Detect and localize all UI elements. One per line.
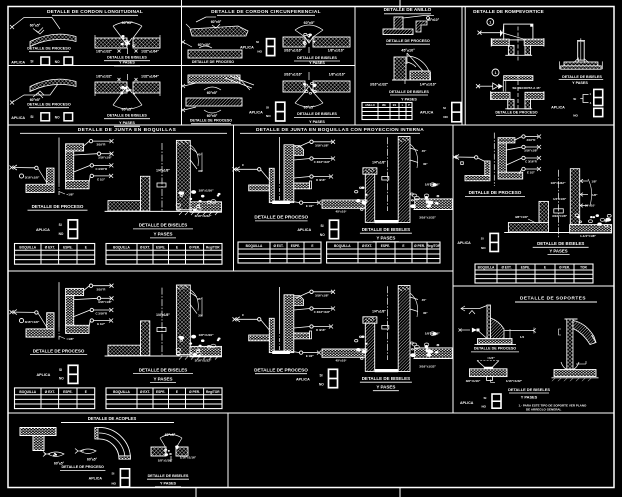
svg-text:3/16″±1/8″: 3/16″±1/8″ (25, 320, 40, 324)
svg-text:E 1/2″: E 1/2″ (97, 322, 106, 326)
svg-text:NO: NO (55, 60, 60, 64)
svg-text:DETALLE DE JUNTA EN BOQUILLAS: DETALLE DE JUNTA EN BOQUILLAS CON PROYEC… (256, 127, 424, 133)
svg-text:BOQUILLA: BOQUILLA (246, 244, 263, 248)
svg-text:Ø EXT.: Ø EXT. (140, 390, 150, 394)
svg-text:≈1/8″: ≈1/8″ (67, 337, 75, 341)
svg-text:APLICA: APLICA (89, 476, 103, 480)
svg-text:APLICA: APLICA (37, 373, 51, 377)
svg-text:30°: 30° (423, 162, 428, 166)
svg-text:SI: SI (484, 396, 487, 400)
svg-text:45°±10°: 45°±10° (335, 359, 347, 363)
svg-text:45°: 45° (197, 153, 202, 157)
svg-text:SI: SI (59, 223, 62, 227)
svg-text:1/4″±1/16″: 1/4″±1/16″ (420, 83, 437, 87)
svg-text:SI: SI (266, 105, 269, 109)
svg-text:30°: 30° (198, 169, 203, 173)
svg-text:E 1/2″: E 1/2″ (306, 354, 315, 358)
svg-text:1/32″±1/64″: 1/32″±1/64″ (141, 50, 159, 54)
svg-text:BOQUILLA: BOQUILLA (113, 390, 130, 394)
svg-text:APLICA: APLICA (457, 241, 471, 245)
svg-text:APLICA: APLICA (11, 116, 25, 120)
svg-text:NO: NO (320, 233, 325, 237)
svg-text:NO: NO (573, 113, 578, 117)
svg-text:60°±5°: 60°±5° (207, 114, 218, 118)
svg-text:1/8″±1/16″: 1/8″±1/16″ (199, 189, 215, 193)
svg-text:DE ARREGLO GENERAL: DE ARREGLO GENERAL (526, 407, 562, 411)
svg-text:45°: 45° (422, 149, 427, 153)
svg-text:45°: 45° (422, 298, 427, 302)
svg-text:1/8″±1/16″: 1/8″±1/16″ (329, 73, 346, 77)
svg-text:Y PASES: Y PASES (119, 121, 135, 125)
svg-text:BOQUILLA: BOQUILLA (334, 244, 351, 248)
svg-text:DETALLE DE BISELES: DETALLE DE BISELES (508, 387, 550, 392)
svg-text:E: E (176, 245, 178, 249)
svg-text:ESPE.: ESPE. (156, 390, 166, 394)
svg-text:NO: NO (481, 246, 486, 250)
svg-text:SI: SI (443, 106, 446, 110)
svg-text:P: P (408, 103, 410, 107)
svg-text:Y PASES: Y PASES (309, 120, 325, 124)
svg-text:60°±5°: 60°±5° (30, 24, 41, 28)
svg-text:DETALLE DE PROCESO: DETALLE DE PROCESO (474, 347, 516, 351)
svg-text:Ø PER.: Ø PER. (189, 390, 200, 394)
svg-text:NO: NO (112, 481, 117, 485)
svg-text:E 1/2″: E 1/2″ (306, 204, 315, 208)
svg-text:APLICA: APLICA (11, 60, 25, 64)
svg-text:Reg/TOR: Reg/TOR (206, 390, 220, 394)
svg-text:C 3/16″±1/8″: C 3/16″±1/8″ (314, 310, 331, 314)
svg-text:1/8″±1/16″: 1/8″±1/16″ (158, 459, 173, 463)
svg-text:SE RECORTA A 45°: SE RECORTA A 45° (512, 86, 541, 90)
svg-text:3/16″±1/16″: 3/16″±1/16″ (284, 49, 303, 53)
svg-text:SI: SI (112, 472, 115, 476)
svg-text:1/8″±1/32″: 1/8″±1/32″ (96, 50, 112, 54)
svg-text:3/16″±1/8″: 3/16″±1/8″ (315, 143, 329, 147)
svg-text:DETALLE DE CORDON CIRCUNFERENC: DETALLE DE CORDON CIRCUNFERENCIAL (211, 9, 321, 15)
svg-text:DETALLE DE BISELES: DETALLE DE BISELES (139, 367, 187, 372)
svg-text:Ø EXT.: Ø EXT. (273, 244, 283, 248)
svg-text:3/16″R: 3/16″R (527, 138, 536, 142)
svg-text:Ø EXT.: Ø EXT. (45, 390, 55, 394)
svg-text:3/16″R: 3/16″R (97, 143, 106, 147)
svg-text:DETALLE DE BISELES: DETALLE DE BISELES (107, 114, 147, 118)
svg-text:3/8″±1/16″: 3/8″±1/16″ (466, 379, 481, 383)
svg-text:NO: NO (266, 114, 271, 118)
svg-text:Y PASES: Y PASES (521, 394, 538, 399)
svg-text:1: 1 (489, 21, 491, 25)
svg-text:≈1/8″: ≈1/8″ (67, 192, 75, 196)
svg-text:ESPE.: ESPE. (63, 245, 73, 249)
svg-text:SI: SI (59, 368, 62, 372)
svg-text:3/16″±1/8″: 3/16″±1/8″ (315, 293, 329, 297)
svg-text:E 1/2″: E 1/2″ (97, 178, 106, 182)
svg-text:Reg/TOR: Reg/TOR (427, 244, 441, 248)
svg-text:1/8″±1/16″: 1/8″±1/16″ (199, 333, 215, 337)
svg-text:E: E (311, 244, 313, 248)
svg-text:DETALLE DE BISELES: DETALLE DE BISELES (362, 227, 410, 232)
svg-text:DETALLE DE PROCESO: DETALLE DE PROCESO (386, 39, 430, 43)
svg-text:APLICA: APLICA (36, 228, 50, 232)
svg-text:ESPE.: ESPE. (381, 244, 391, 248)
svg-text:3/16″±1/32″: 3/16″±1/32″ (419, 215, 436, 219)
svg-text:DETALLE DE PROCESO: DETALLE DE PROCESO (32, 204, 84, 209)
svg-text:DETALLE DE PROCESO: DETALLE DE PROCESO (190, 119, 232, 123)
svg-text:BOQUILLA: BOQUILLA (113, 245, 130, 249)
svg-text:NO: NO (443, 115, 448, 119)
svg-text:3/16″±1/32″: 3/16″±1/32″ (370, 83, 389, 87)
svg-text:ESPE.: ESPE. (156, 245, 166, 249)
svg-text:BOQUILLA: BOQUILLA (19, 245, 36, 249)
svg-text:1/8″±1/32″: 1/8″±1/32″ (551, 181, 567, 185)
svg-text:DETALLE DE PROCESO: DETALLE DE PROCESO (254, 368, 308, 373)
svg-text:3/16″±1/32″: 3/16″±1/32″ (195, 214, 212, 218)
svg-text:Y PASES: Y PASES (401, 97, 417, 101)
svg-text:D 3/16″: D 3/16″ (316, 178, 326, 182)
svg-text:1: 1 (495, 71, 497, 75)
svg-text:C 3/16″R: C 3/16″R (525, 160, 537, 164)
svg-text:1/4″±1/8″: 1/4″±1/8″ (372, 310, 386, 314)
svg-text:30°: 30° (423, 311, 428, 315)
svg-text:ØE: ØE (382, 103, 386, 107)
svg-text:1-1/4″±1/8″: 1-1/4″±1/8″ (580, 234, 597, 238)
svg-text:TOR: TOR (580, 265, 587, 269)
svg-text:SI: SI (320, 373, 323, 377)
svg-text:BOQUILLA: BOQUILLA (19, 390, 36, 394)
svg-text:1/4: 1/4 (520, 335, 525, 339)
svg-text:DETALLE DE SOPORTES: DETALLE DE SOPORTES (520, 295, 586, 300)
svg-text:DETALLE DE PROCESO: DETALLE DE PROCESO (27, 103, 71, 107)
svg-text:ESPE.: ESPE. (63, 390, 73, 394)
svg-text:Ø PER.: Ø PER. (559, 265, 570, 269)
svg-text:1/4″±1/8″: 1/4″±1/8″ (156, 169, 170, 173)
svg-text:3/16″±1/8″: 3/16″±1/8″ (25, 176, 40, 180)
svg-text:60°±5°: 60°±5° (30, 98, 41, 102)
svg-text:1/32″±1/64″: 1/32″±1/64″ (141, 75, 159, 79)
svg-text:BOQUILLA: BOQUILLA (478, 265, 495, 269)
svg-text:APLICA: APLICA (249, 111, 263, 115)
svg-text:DETALLE DE ANILLO: DETALLE DE ANILLO (384, 7, 432, 12)
svg-text:3/16″±1/32″: 3/16″±1/32″ (419, 364, 436, 368)
svg-text:Y PASES: Y PASES (572, 81, 588, 85)
svg-text:DETALLE DE BISELES: DETALLE DE BISELES (139, 223, 187, 228)
svg-text:≈1/4″: ≈1/4″ (487, 356, 495, 360)
svg-text:APLICA: APLICA (420, 110, 434, 114)
svg-text:Reg/TOR: Reg/TOR (206, 245, 220, 249)
svg-text:DETALLE DE PROCESO: DETALLE DE PROCESO (254, 215, 308, 220)
svg-text:3/16″R: 3/16″R (97, 287, 106, 291)
svg-text:DETALLE DE BISELES: DETALLE DE BISELES (107, 56, 147, 60)
svg-text:NO: NO (482, 405, 487, 409)
svg-text:DETALLE DE BISELES: DETALLE DE BISELES (297, 56, 337, 60)
svg-text:1/16″±1/32″: 1/16″±1/32″ (506, 379, 523, 383)
svg-text:3/16″±1/8″: 3/16″±1/8″ (552, 214, 568, 218)
svg-text:SI: SI (573, 97, 576, 101)
svg-text:D 3/16″: D 3/16″ (316, 328, 326, 332)
svg-text:DETALLE DE BISELES: DETALLE DE BISELES (362, 376, 410, 381)
svg-text:SI: SI (481, 236, 484, 240)
svg-text:DETALLE DE PROCESO: DETALLE DE PROCESO (27, 47, 71, 51)
svg-text:DETALLE DE JUNTA EN BOQUILLAS: DETALLE DE JUNTA EN BOQUILLAS (78, 127, 177, 133)
svg-text:C 3/16″R: C 3/16″R (95, 312, 107, 316)
svg-text:DETALLE DE BISELES: DETALLE DE BISELES (389, 90, 429, 94)
svg-text:1/16″±1/16″: 1/16″±1/16″ (180, 456, 197, 460)
svg-text:3/8″±1/8″: 3/8″±1/8″ (515, 215, 529, 219)
svg-text:DETALLE DE PROCESO: DETALLE DE PROCESO (33, 348, 85, 353)
svg-text:E: E (85, 245, 87, 249)
svg-text:DETALLE DE PROCESO: DETALLE DE PROCESO (469, 190, 522, 195)
svg-text:SI: SI (30, 59, 33, 63)
svg-text:APLICA: APLICA (240, 46, 254, 50)
svg-text:Ø PER.: Ø PER. (189, 245, 200, 249)
svg-text:45°±10°: 45°±10° (427, 18, 440, 22)
svg-text:DETALLE DE ROMPEVORTICE: DETALLE DE ROMPEVORTICE (473, 9, 544, 14)
svg-text:DETALLE DE BISELES: DETALLE DE BISELES (297, 112, 337, 116)
svg-text:SI: SI (256, 40, 259, 44)
svg-text:3/16″±1/8″: 3/16″±1/8″ (524, 149, 538, 153)
svg-text:NO: NO (55, 116, 60, 120)
svg-text:E: E (544, 265, 546, 269)
svg-text:ESPE.: ESPE. (291, 244, 301, 248)
svg-text:DETALLE DE BISELES: DETALLE DE BISELES (148, 474, 189, 478)
svg-text:1/4″±1/8″: 1/4″±1/8″ (372, 161, 386, 165)
svg-text:45°±10°: 45°±10° (335, 210, 347, 214)
svg-text:Y PASES: Y PASES (376, 236, 395, 241)
svg-text:DETALLE DE BISELES: DETALLE DE BISELES (562, 75, 602, 79)
svg-text:NO: NO (257, 49, 262, 53)
svg-text:1/8″: 1/8″ (592, 193, 598, 197)
svg-text:Ø EXT.: Ø EXT. (45, 245, 55, 249)
svg-text:E: E (85, 390, 87, 394)
svg-text:APLICA: APLICA (460, 401, 474, 405)
svg-text:60°±5°: 60°±5° (122, 21, 133, 25)
svg-text:APLICA: APLICA (296, 378, 310, 382)
svg-text:3/16″±1/32″: 3/16″±1/32″ (195, 358, 212, 362)
svg-text:3/16″±1/16″: 3/16″±1/16″ (284, 73, 303, 77)
svg-text:DETALLE DE PROCESO: DETALLE DE PROCESO (495, 111, 537, 115)
svg-text:NO: NO (59, 377, 64, 381)
svg-text:60°±5°: 60°±5° (87, 458, 98, 462)
svg-text:45°±10°: 45°±10° (401, 49, 415, 53)
svg-text:60°±5°: 60°±5° (304, 21, 315, 25)
svg-text:DETALLE DE PROCESO: DETALLE DE PROCESO (62, 465, 104, 469)
svg-text:3/16″±1/8″: 3/16″±1/8″ (98, 155, 112, 159)
svg-text:DETALLE DE BISELES: DETALLE DE BISELES (537, 241, 584, 246)
svg-text:Y PASES: Y PASES (119, 61, 135, 65)
svg-text:E: E (176, 390, 178, 394)
svg-text:45°: 45° (197, 297, 202, 301)
svg-text:1/8″±1/32″: 1/8″±1/32″ (96, 75, 112, 79)
svg-text:1/4″±1/8″: 1/4″±1/8″ (553, 197, 567, 201)
svg-text:ESPE.: ESPE. (521, 265, 531, 269)
svg-text:DETALLE DE PROCESO: DETALLE DE PROCESO (192, 60, 234, 64)
svg-text:3/16″±1/8″: 3/16″±1/8″ (98, 300, 112, 304)
svg-text:Y PASES: Y PASES (309, 61, 325, 65)
svg-text:E 1/2″: E 1/2″ (527, 171, 536, 175)
svg-text:C 3/16″±1/8″: C 3/16″±1/8″ (314, 160, 331, 164)
svg-text:Y PASES: Y PASES (153, 376, 172, 381)
svg-text:60°±5°: 60°±5° (211, 20, 222, 24)
svg-text:DETALLE DE ACOPLES: DETALLE DE ACOPLES (88, 416, 137, 421)
svg-text:DETALLE DE CORDON LONGITUDINAL: DETALLE DE CORDON LONGITUDINAL (47, 9, 143, 15)
svg-text:60°±5°: 60°±5° (304, 106, 315, 110)
svg-text:30°: 30° (198, 314, 203, 318)
svg-text:Ø EXT.: Ø EXT. (501, 265, 511, 269)
svg-text:1/8″±1/16″: 1/8″±1/16″ (328, 49, 345, 53)
svg-text:NO: NO (319, 382, 324, 386)
svg-text:Ø PER.: Ø PER. (414, 244, 425, 248)
svg-text:Y PASES: Y PASES (376, 385, 395, 390)
svg-text:Ø EXT.: Ø EXT. (362, 244, 372, 248)
svg-text:C 3/16″R: C 3/16″R (95, 167, 107, 171)
svg-text:Y PASES: Y PASES (549, 249, 567, 254)
svg-text:ANILLO: ANILLO (365, 103, 375, 107)
svg-text:1/8″: 1/8″ (592, 179, 598, 183)
svg-text:APLICA: APLICA (297, 228, 311, 232)
svg-text:Y PASES: Y PASES (153, 232, 172, 237)
svg-text:60°±5°: 60°±5° (122, 108, 133, 112)
svg-text:SI: SI (321, 224, 324, 228)
svg-text:E: E (402, 244, 404, 248)
svg-text:Ø EXT.: Ø EXT. (140, 245, 150, 249)
svg-text:60°±5°: 60°±5° (207, 91, 218, 95)
svg-text:1/4″±1/8″: 1/4″±1/8″ (156, 313, 170, 317)
svg-text:SI: SI (30, 115, 33, 119)
svg-text:APLICA: APLICA (551, 106, 565, 110)
svg-text:NO: NO (59, 232, 64, 236)
svg-text:ES: ES (393, 103, 397, 107)
svg-text:Y PASES: Y PASES (160, 482, 177, 486)
